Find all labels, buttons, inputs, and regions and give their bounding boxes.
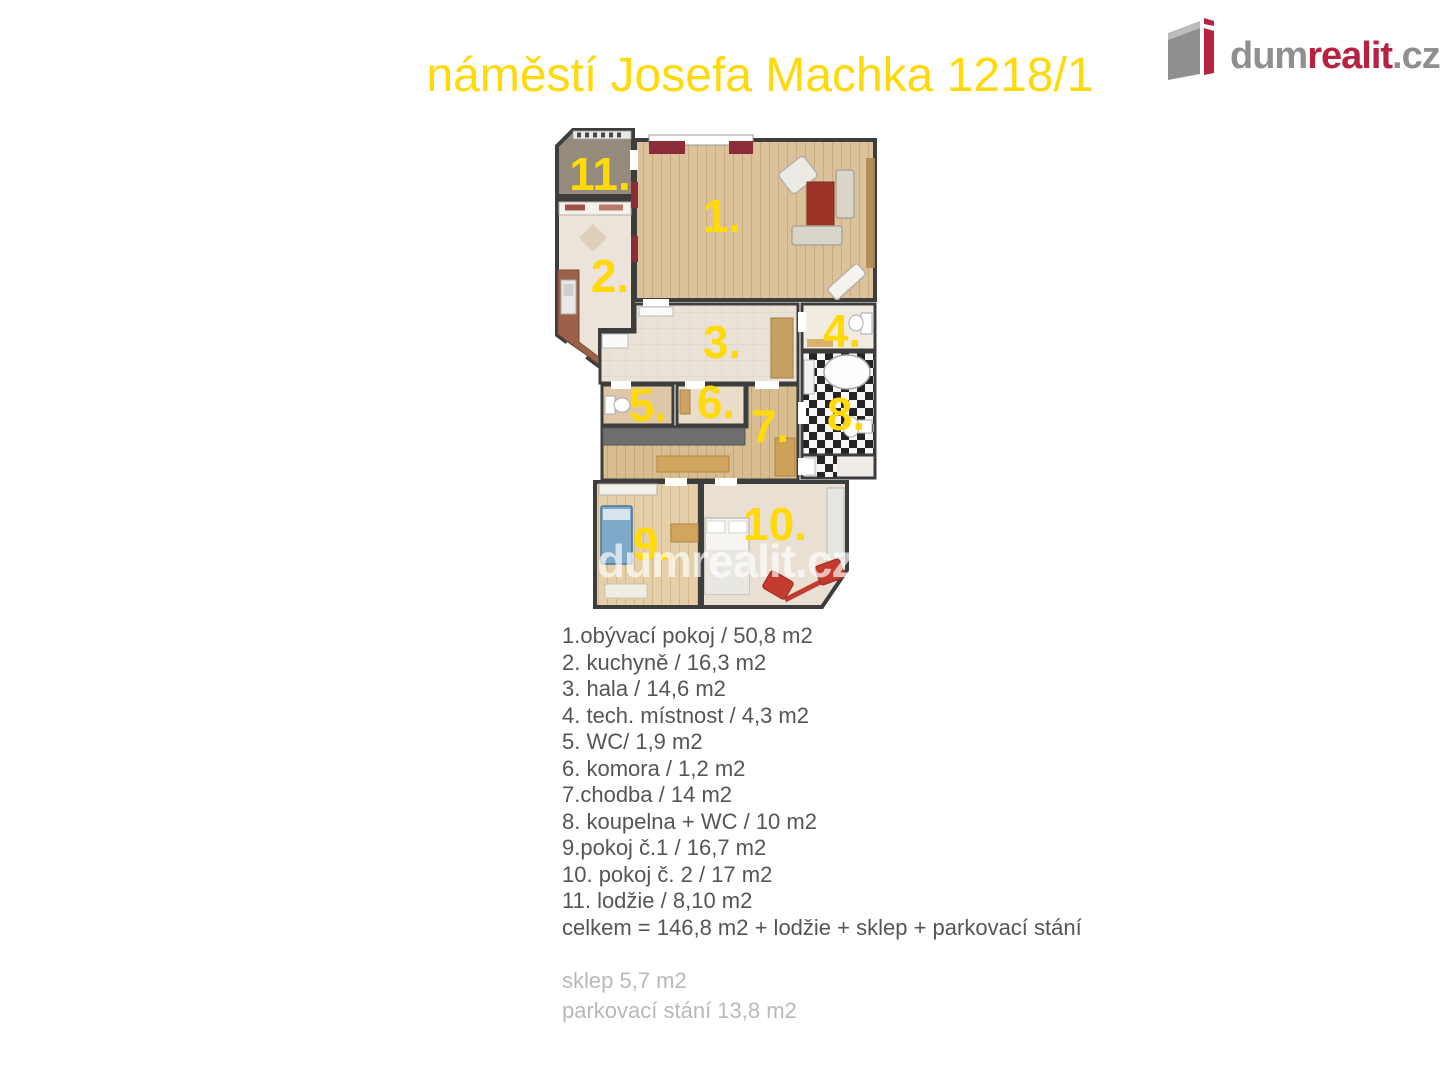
room-label-5: 5. bbox=[629, 379, 667, 431]
sofa bbox=[836, 170, 854, 218]
room-label-3: 3. bbox=[703, 316, 741, 368]
dumrealit-logo: dumrealit.cz bbox=[1166, 16, 1440, 80]
curtain bbox=[631, 236, 638, 262]
legend-item: 6. komora / 1,2 m2 bbox=[562, 756, 1082, 783]
desk bbox=[671, 524, 698, 542]
wardrobe bbox=[603, 428, 745, 445]
curtain bbox=[649, 141, 685, 154]
room-label-1: 1. bbox=[703, 190, 741, 242]
extra-notes: sklep 5,7 m2 parkovací stání 13,8 m2 bbox=[562, 966, 797, 1026]
legend-item: 9.pokoj č.1 / 16,7 m2 bbox=[562, 835, 1082, 862]
room-label-8: 8. bbox=[827, 388, 865, 440]
legend-item: 4. tech. místnost / 4,3 m2 bbox=[562, 703, 1082, 730]
room-label-9: 9. bbox=[633, 518, 671, 570]
bathtub bbox=[824, 355, 870, 389]
legend-item: 8. koupelna + WC / 10 m2 bbox=[562, 809, 1082, 836]
rug bbox=[807, 182, 834, 227]
wardrobe bbox=[771, 318, 793, 378]
logo-text: dumrealit.cz bbox=[1230, 35, 1440, 78]
curtain bbox=[729, 141, 753, 154]
floor-plan: 1. 2. 3. 4. 5. 6. 7. 8. 9. 10. 11. dumre… bbox=[545, 120, 895, 620]
sofa bbox=[792, 226, 842, 245]
room-label-7: 7. bbox=[751, 400, 789, 452]
sideboard bbox=[657, 456, 729, 472]
room-label-2: 2. bbox=[591, 250, 629, 302]
legend: 1.obývací pokoj / 50,8 m2 2. kuchyně / 1… bbox=[562, 623, 1082, 941]
floor-plan-drawing: 1. 2. 3. 4. 5. 6. 7. 8. 9. 10. 11. bbox=[545, 120, 895, 620]
extra-note-parking: parkovací stání 13,8 m2 bbox=[562, 996, 797, 1026]
toilet bbox=[614, 398, 630, 412]
wardrobe bbox=[827, 488, 844, 566]
curtain bbox=[631, 182, 638, 208]
room-label-6: 6. bbox=[697, 376, 735, 428]
logo-text-realit: realit bbox=[1307, 35, 1392, 77]
room-label-4: 4. bbox=[823, 305, 861, 357]
dumrealit-logo-icon bbox=[1166, 18, 1218, 80]
legend-item: 3. hala / 14,6 m2 bbox=[562, 676, 1082, 703]
extra-note-cellar: sklep 5,7 m2 bbox=[562, 966, 797, 996]
legend-total: celkem = 146,8 m2 + lodžie + sklep + par… bbox=[562, 915, 1082, 942]
legend-item: 7.chodba / 14 m2 bbox=[562, 782, 1082, 809]
logo-text-dum: dum bbox=[1230, 35, 1307, 77]
logo-text-cz: .cz bbox=[1392, 35, 1440, 77]
legend-item: 1.obývací pokoj / 50,8 m2 bbox=[562, 623, 1082, 650]
room-label-11: 11. bbox=[569, 148, 630, 200]
legend-item: 10. pokoj č. 2 / 17 m2 bbox=[562, 862, 1082, 889]
legend-item: 5. WC/ 1,9 m2 bbox=[562, 729, 1082, 756]
room-label-10: 10. bbox=[743, 498, 807, 550]
page: náměstí Josefa Machka 1218/1 dumrealit.c… bbox=[0, 0, 1440, 1080]
room-1-living-room bbox=[631, 135, 875, 301]
legend-item: 2. kuchyně / 16,3 m2 bbox=[562, 650, 1082, 677]
legend-item: 11. lodžie / 8,10 m2 bbox=[562, 888, 1082, 915]
